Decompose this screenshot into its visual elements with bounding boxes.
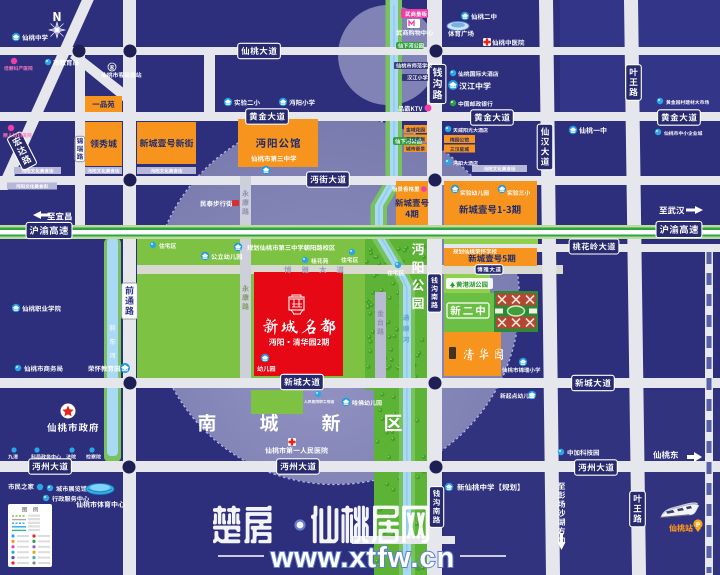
svg-text:www.xtfw.cn: www.xtfw.cn [270,542,455,574]
